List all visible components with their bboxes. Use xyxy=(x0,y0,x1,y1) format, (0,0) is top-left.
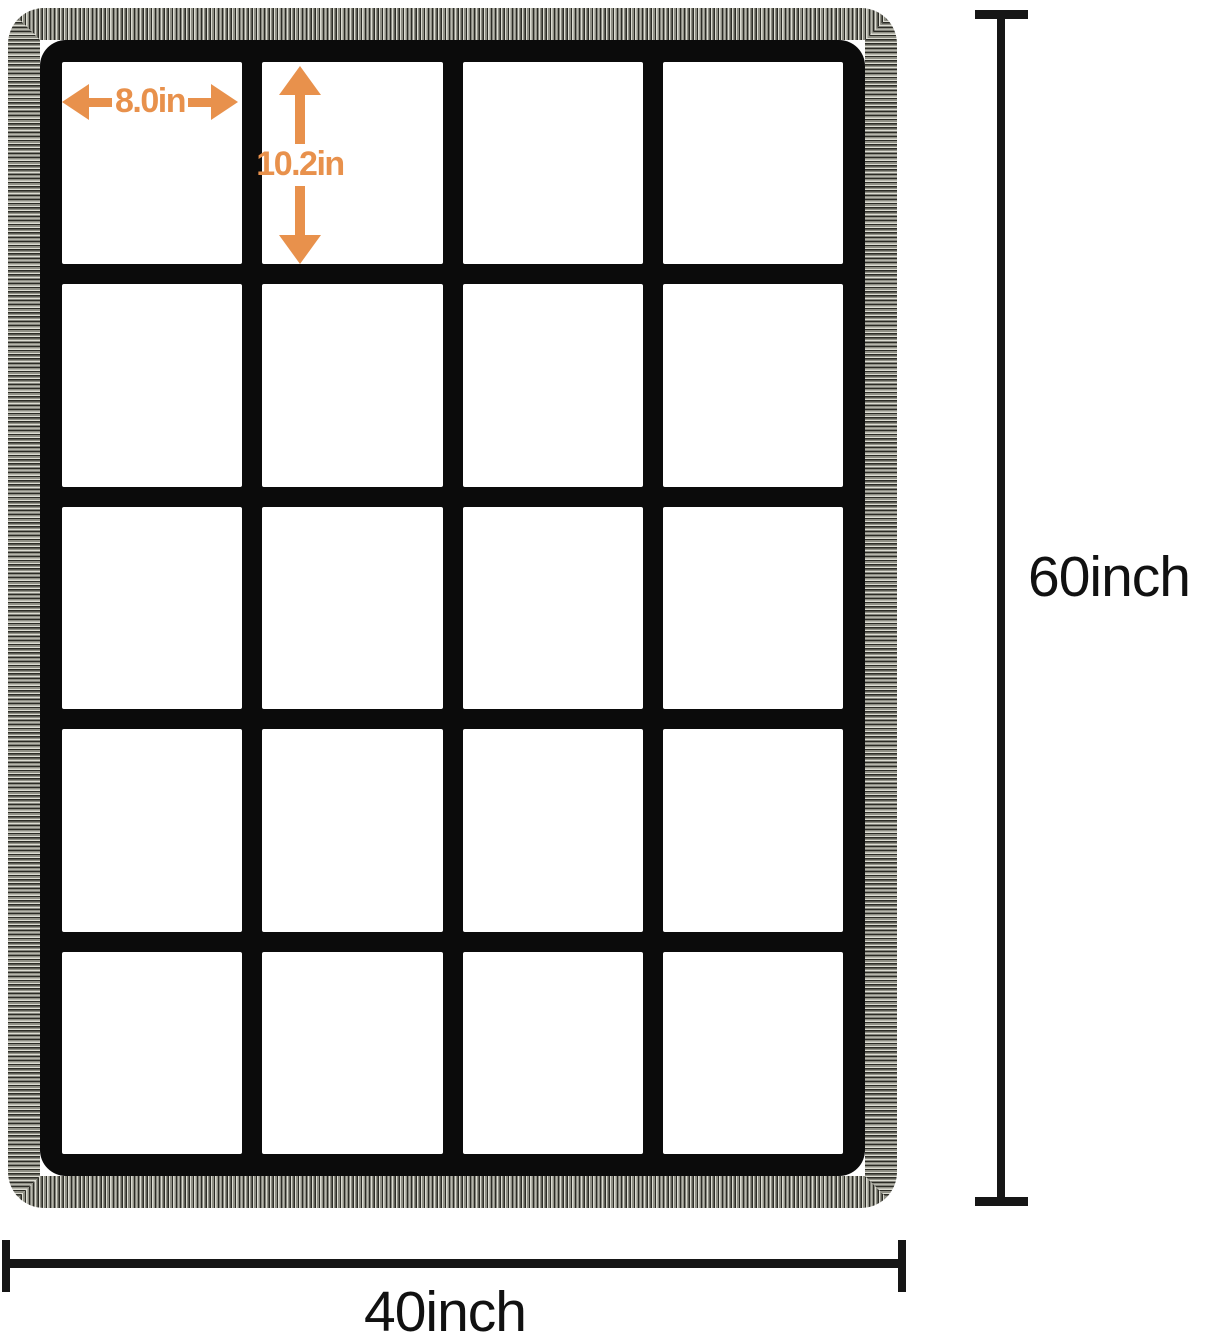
grid-cell xyxy=(463,952,643,1154)
arrow-right-icon xyxy=(211,84,238,120)
grid-cell xyxy=(463,507,643,709)
grid-cell xyxy=(663,729,843,931)
arrow-up-icon xyxy=(279,66,321,95)
width-ruler-line xyxy=(2,1259,906,1268)
grid-cell xyxy=(262,507,442,709)
cell-width-measure: 8.0in xyxy=(62,83,238,121)
grid-cell xyxy=(262,284,442,486)
overall-width-label: 40inch xyxy=(330,1283,560,1343)
measure-line xyxy=(295,186,305,235)
cell-height-measure: 10.2in xyxy=(252,66,348,264)
width-ruler-cap-right xyxy=(898,1240,906,1292)
width-ruler-cap-left xyxy=(2,1240,10,1292)
overall-height-label: 60inch xyxy=(1028,548,1190,608)
grid-cell xyxy=(663,62,843,264)
height-ruler-cap-top xyxy=(975,10,1028,19)
dimension-diagram: 8.0in 10.2in 60inch 40inch xyxy=(0,0,1214,1343)
photo-blanket: 8.0in 10.2in xyxy=(8,8,897,1208)
height-ruler-cap-bottom xyxy=(975,1197,1028,1206)
cell-width-label: 8.0in xyxy=(112,84,188,120)
grid-cell xyxy=(262,952,442,1154)
measure-line xyxy=(188,98,211,107)
grid-cell xyxy=(463,284,643,486)
grid-cell xyxy=(663,284,843,486)
binding-edge-right xyxy=(865,8,897,1208)
measure-line xyxy=(89,98,112,107)
grid-cell xyxy=(62,284,242,486)
cell-height-label: 10.2in xyxy=(256,144,343,186)
binding-edge-bottom xyxy=(8,1176,897,1208)
grid-cell xyxy=(663,507,843,709)
arrow-down-icon xyxy=(279,235,321,264)
grid-cell xyxy=(663,952,843,1154)
photo-grid-frame: 8.0in 10.2in xyxy=(40,40,865,1176)
grid-cell xyxy=(62,952,242,1154)
grid-cell xyxy=(62,507,242,709)
grid-cell xyxy=(463,729,643,931)
grid-cell xyxy=(262,729,442,931)
binding-edge-top xyxy=(8,8,897,40)
measure-line xyxy=(295,95,305,144)
binding-edge-left xyxy=(8,8,40,1208)
grid-cell xyxy=(62,729,242,931)
arrow-left-icon xyxy=(62,84,89,120)
height-ruler-line xyxy=(997,12,1005,1206)
grid-cell xyxy=(463,62,643,264)
